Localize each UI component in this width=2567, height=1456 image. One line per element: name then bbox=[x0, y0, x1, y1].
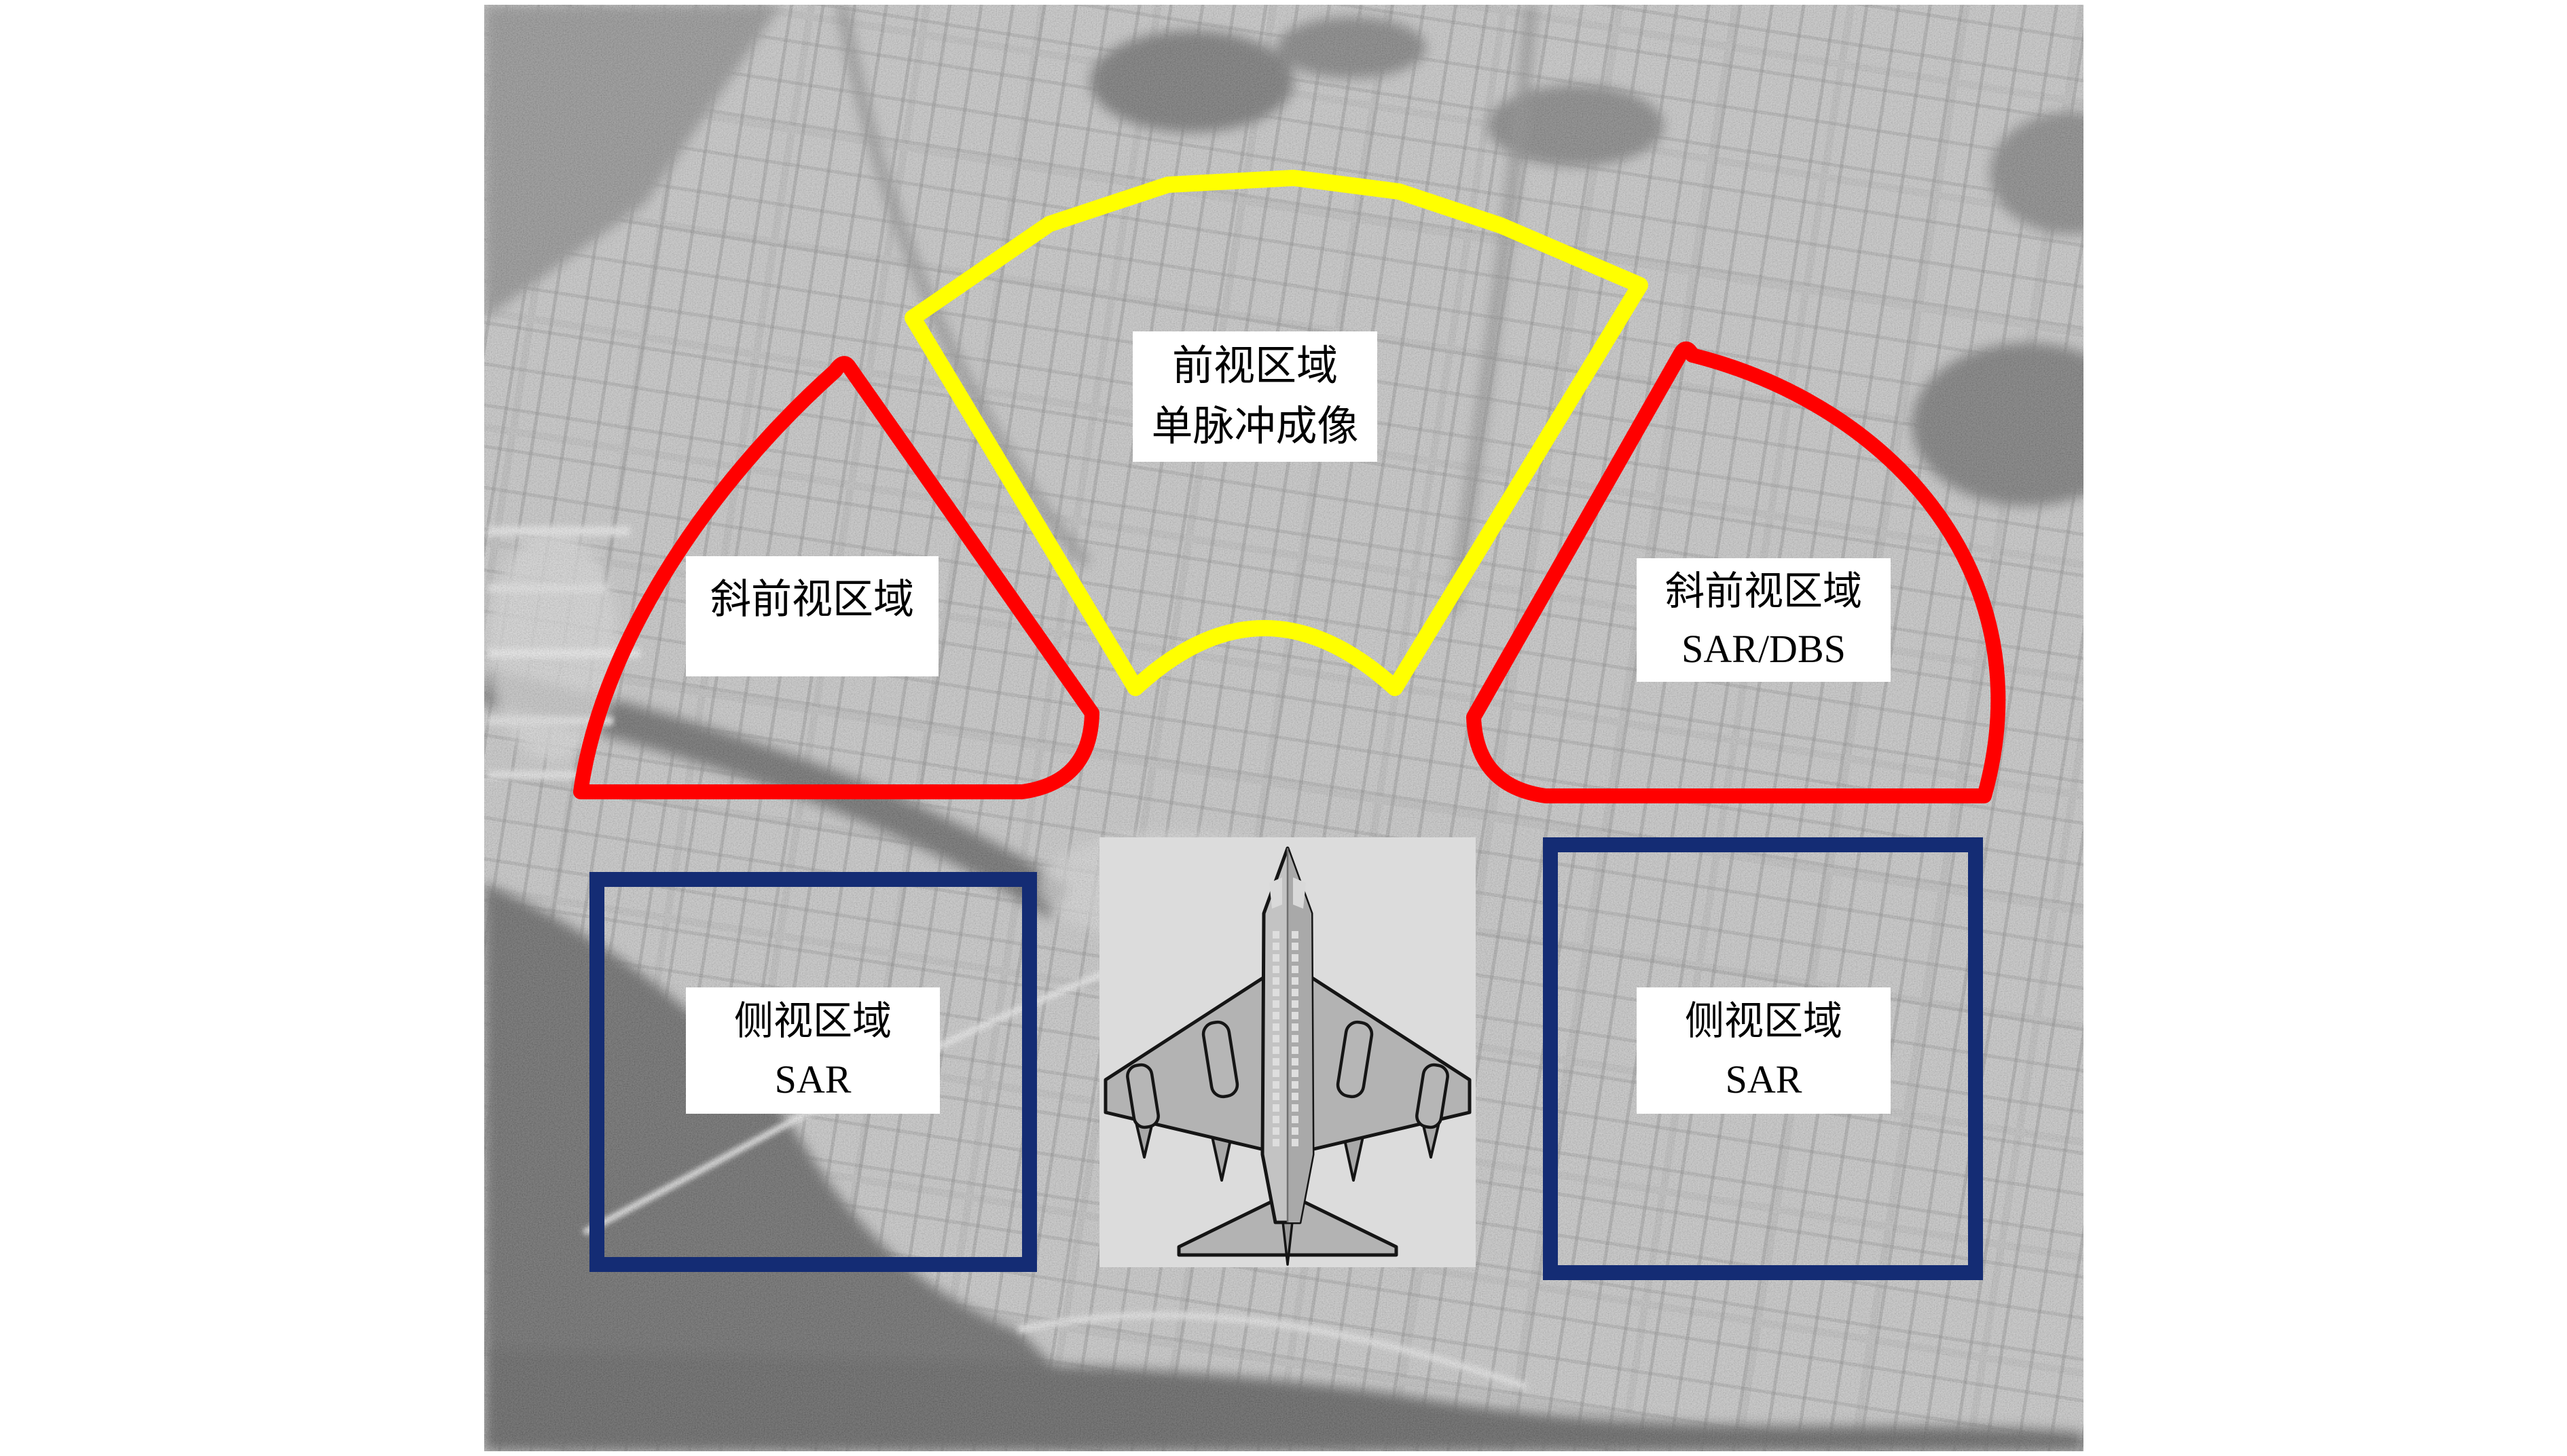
squint-right-region-label: 斜前视区域 SAR/DBS bbox=[1637, 558, 1891, 682]
sar-image-area: 前视区域 单脉冲成像 斜前视区域 斜前视区域 SAR/DBS 侧视区域 SAR … bbox=[484, 5, 2083, 1451]
scene-svg bbox=[484, 5, 2083, 1451]
squint-right-region-label-line2: SAR/DBS bbox=[1681, 620, 1846, 678]
squint-right-region-label-line1: 斜前视区域 bbox=[1665, 562, 1862, 620]
side-left-region-label-line2: SAR bbox=[775, 1051, 852, 1109]
side-left-region-label-line1: 侧视区域 bbox=[734, 992, 892, 1051]
forward-region-label-line1: 前视区域 bbox=[1172, 336, 1338, 397]
figure-canvas: 前视区域 单脉冲成像 斜前视区域 斜前视区域 SAR/DBS 侧视区域 SAR … bbox=[0, 0, 2567, 1456]
forward-region-label-line2: 单脉冲成像 bbox=[1151, 397, 1358, 457]
forward-region-label: 前视区域 单脉冲成像 bbox=[1133, 331, 1377, 462]
side-right-region-label-line2: SAR bbox=[1726, 1051, 1802, 1109]
side-right-region-label: 侧视区域 SAR bbox=[1637, 987, 1891, 1114]
squint-left-region-label-line1: 斜前视区域 bbox=[710, 575, 914, 624]
side-left-region-label: 侧视区域 SAR bbox=[686, 987, 940, 1114]
side-right-region-label-line1: 侧视区域 bbox=[1685, 992, 1842, 1051]
squint-left-region-label: 斜前视区域 bbox=[686, 556, 939, 676]
